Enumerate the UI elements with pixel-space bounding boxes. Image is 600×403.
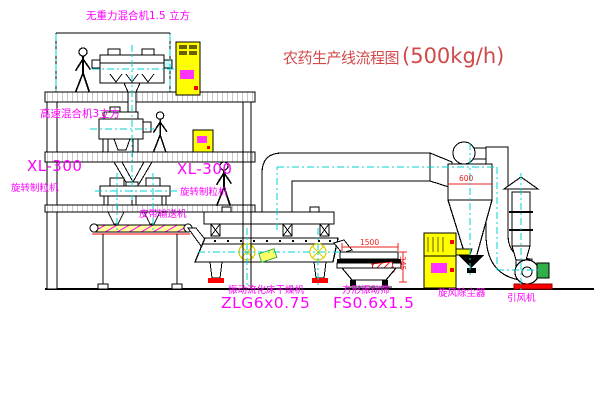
dim-cyclone-diameter: 600	[459, 175, 473, 183]
process-flow-diagram: 无重力混合机1.5 立方 农药生产线流程图 (500kg/h) 高速混合机3立方…	[0, 0, 600, 403]
control-cabinet-top	[176, 42, 200, 95]
label-granulator-mid-name: 旋转制粒机	[180, 188, 228, 198]
title-text: 农药生产线流程图	[283, 51, 399, 66]
induced-draft-fan	[514, 260, 552, 289]
title-capacity: (500kg/h)	[402, 46, 504, 67]
control-cabinet-bottom	[424, 233, 456, 288]
label-granulator-left-name: 旋转制粒机	[11, 184, 59, 194]
label-gravity-mixer: 无重力混合机1.5 立方	[86, 11, 190, 22]
label-high-speed-mixer: 高速混合机3立方	[40, 109, 120, 120]
fluid-bed-dryer	[195, 207, 338, 283]
vibrating-screen	[334, 240, 407, 287]
label-granulator-mid-model: XL-300	[177, 162, 232, 177]
label-granulator-left-model: XL-300	[27, 159, 82, 174]
label-cyclone: 旋风除尘器	[438, 289, 486, 299]
dim-screen-height: 345	[399, 256, 407, 270]
belt-conveyor	[90, 224, 208, 289]
label-belt-conveyor: 皮带输送机	[139, 210, 187, 220]
label-screen-model: FS0.6x1.5	[333, 296, 414, 312]
worker-figure-2	[154, 112, 167, 152]
label-dryer-model: ZLG6x0.75	[221, 296, 310, 312]
label-fan: 引风机	[507, 294, 536, 304]
worker-figure-1	[76, 48, 90, 91]
dim-screen-length: 1500	[360, 239, 379, 247]
control-box-mid	[193, 130, 213, 152]
diagram-title: 农药生产线流程图 (500kg/h)	[283, 46, 504, 67]
